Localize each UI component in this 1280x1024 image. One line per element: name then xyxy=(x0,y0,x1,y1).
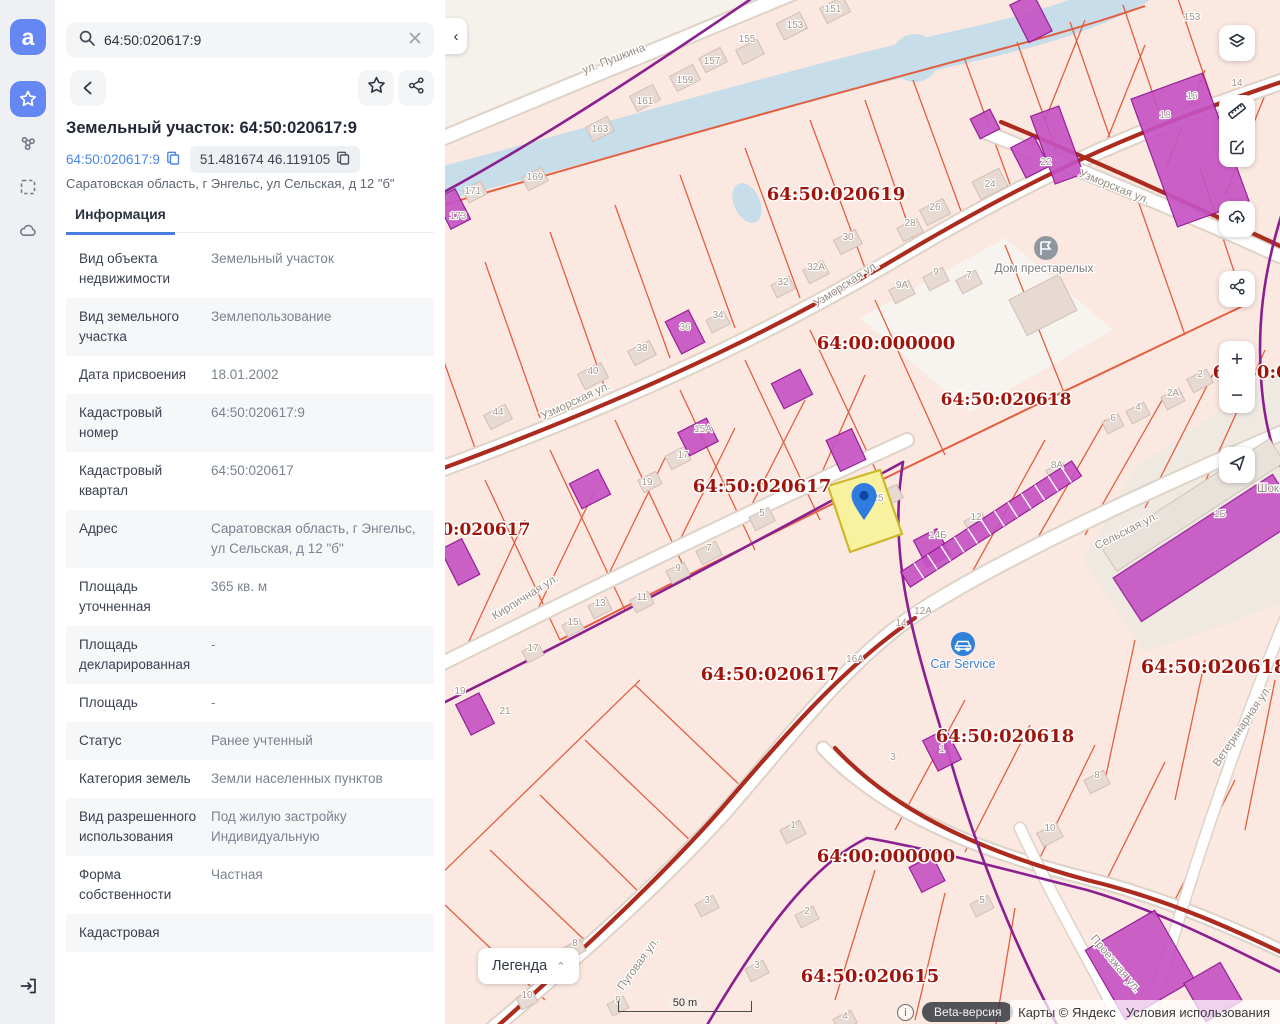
quarter-label: 64:50:020618 xyxy=(936,726,1075,747)
house-number: 9 xyxy=(933,267,939,278)
panel-actions xyxy=(66,70,434,106)
table-row: Площадь уточненная365 кв. м xyxy=(66,568,434,626)
house-number: 171 xyxy=(465,186,482,197)
house-number: 163 xyxy=(592,124,609,135)
terms-link[interactable]: Условия использования xyxy=(1126,1005,1270,1020)
quarter-label: 64:50:020615 xyxy=(801,966,940,987)
house-number: 14 xyxy=(895,618,907,629)
house-number: 16 xyxy=(1186,91,1198,102)
house-number: 16А xyxy=(846,654,864,665)
polygon-tool-button[interactable] xyxy=(10,125,46,161)
object-address: Саратовская область, г Энгельс, ул Сельс… xyxy=(66,176,434,191)
layers-button[interactable] xyxy=(1219,25,1255,61)
house-number: 5 xyxy=(759,508,765,519)
house-number: 8 xyxy=(572,938,578,949)
upload-button[interactable] xyxy=(1219,201,1255,237)
copy-cadastral-icon[interactable] xyxy=(166,151,180,168)
house-number: 155 xyxy=(739,34,756,45)
house-number: 15А xyxy=(694,424,712,435)
house-number: 34 xyxy=(712,310,724,321)
sign-in-button[interactable] xyxy=(10,968,46,1004)
quarter-label: 64:50:020617 xyxy=(693,476,832,497)
legend-label: Легенда xyxy=(492,958,547,974)
edit-pencil-icon xyxy=(1227,137,1247,162)
collapse-panel-button[interactable]: ‹ xyxy=(445,18,467,54)
house-number: 7 xyxy=(706,543,712,554)
search-box xyxy=(66,22,434,58)
table-row: Дата присвоения18.01.2002 xyxy=(66,356,434,394)
house-number: 3 xyxy=(704,895,710,906)
star-outline-icon xyxy=(366,75,387,101)
table-row: Кадастровый квартал64:50:020617 xyxy=(66,452,434,510)
quarter-label: 64:00:000000 xyxy=(817,333,956,354)
scale-bar: 50 m xyxy=(618,1001,752,1012)
house-number: 169 xyxy=(527,172,544,183)
info-table: Вид объекта недвижимостиЗемельный участо… xyxy=(66,240,434,952)
zoom-in-button[interactable]: + xyxy=(1219,341,1255,377)
house-number: 19 xyxy=(641,477,653,488)
plus-icon: + xyxy=(1231,349,1243,370)
house-number: 44 xyxy=(492,407,504,418)
house-number: 1 xyxy=(790,820,796,831)
navigation-arrow-icon xyxy=(1227,453,1247,478)
house-number: 159 xyxy=(677,75,694,86)
house-number: 6 xyxy=(1110,413,1116,424)
house-number: 5 xyxy=(979,895,985,906)
share-object-button[interactable] xyxy=(398,70,434,106)
object-info-panel: Земельный участок: 64:50:020617:9 64:50:… xyxy=(55,0,445,1024)
house-number: 13 xyxy=(594,598,606,609)
house-number: 173 xyxy=(450,211,467,222)
search-input[interactable] xyxy=(104,32,400,48)
house-number: 9 xyxy=(675,563,681,574)
cadastral-number-link[interactable]: 64:50:020617:9 xyxy=(66,152,160,167)
house-number: 157 xyxy=(704,56,721,67)
cadastral-map-app: a xyxy=(0,0,1280,1024)
house-number: 36 xyxy=(679,322,691,333)
chevron-up-icon: ⌃ xyxy=(556,960,565,973)
share-nodes-icon xyxy=(407,76,426,100)
info-icon[interactable]: i xyxy=(897,1004,914,1021)
table-row: СтатусРанее учтенный xyxy=(66,722,434,760)
locate-me-button[interactable] xyxy=(1219,447,1255,483)
quarter-label: 64:50:020618 xyxy=(1141,656,1280,678)
cloud-button[interactable] xyxy=(10,213,46,249)
table-row: Кадастровая xyxy=(66,914,434,952)
house-number: 26 xyxy=(929,202,941,213)
table-row: Категория земельЗемли населенных пунктов xyxy=(66,760,434,798)
poi-label: Car Service xyxy=(930,657,995,671)
zoom-controls: + − xyxy=(1219,341,1255,413)
house-number: 32 xyxy=(777,277,789,288)
coordinates-value: 51.481674 46.119105 xyxy=(200,152,330,167)
house-number: 10 xyxy=(521,990,533,1001)
attribution-text: Карты © Яндекс xyxy=(1018,1005,1116,1020)
panel-tabs: Информация xyxy=(66,200,434,233)
street-label: Шоко xyxy=(1257,483,1280,495)
ruler-button[interactable] xyxy=(1219,95,1255,131)
chevron-left-icon: ‹ xyxy=(454,28,459,45)
coordinates-chip[interactable]: 51.481674 46.119105 xyxy=(190,146,360,173)
house-number: 12 xyxy=(970,512,982,523)
house-number: 21 xyxy=(499,706,511,717)
map-attribution: Карты © Яндекс Условия использования xyxy=(1010,1000,1280,1024)
house-number: 12А xyxy=(914,606,932,617)
minus-icon: − xyxy=(1231,385,1243,406)
house-number: 1Б xyxy=(1214,509,1227,520)
quarter-label: 64:00:000000 xyxy=(817,846,956,867)
object-identifiers: 64:50:020617:9 51.481674 46.119105 xyxy=(66,146,360,173)
house-number: 14 xyxy=(1231,78,1243,89)
house-number: 11 xyxy=(637,592,648,603)
table-row: Форма собственностиЧастная xyxy=(66,856,434,914)
house-number: 2 xyxy=(804,906,810,917)
house-number: 2А xyxy=(1167,388,1180,399)
house-number: 19 xyxy=(454,686,466,697)
app-logo-icon[interactable]: a xyxy=(10,19,46,55)
legend-button[interactable]: Легенда ⌃ xyxy=(478,948,579,984)
tab-information[interactable]: Информация xyxy=(66,200,175,235)
quarter-label: 64:50:020617 xyxy=(445,520,530,540)
measure-tools-group xyxy=(1219,95,1255,167)
quarter-label: 64:50:020617 xyxy=(701,664,840,685)
table-row: Площадь декларированная- xyxy=(66,626,434,684)
draw-edit-button[interactable] xyxy=(1219,131,1255,167)
house-number: 24 xyxy=(984,179,996,190)
dashed-square-icon xyxy=(18,177,38,197)
house-number: 28 xyxy=(904,218,916,229)
house-number: 40 xyxy=(587,366,599,377)
map-canvas[interactable]: 151 153 155 157 159 161 163 169 171 173 … xyxy=(445,0,1280,1024)
table-row: Вид объекта недвижимостиЗемельный участо… xyxy=(66,240,434,298)
sign-in-icon xyxy=(18,976,38,996)
map-viewport: 151 153 155 157 159 161 163 169 171 173 … xyxy=(445,0,1280,1024)
house-number: 151 xyxy=(825,4,842,15)
area-select-button[interactable] xyxy=(10,169,46,205)
zoom-out-button[interactable]: − xyxy=(1219,377,1255,413)
house-number: 14Б xyxy=(929,530,947,541)
house-number: 17 xyxy=(677,450,689,461)
house-number: 30 xyxy=(842,232,854,243)
house-number: 153 xyxy=(1184,12,1201,23)
house-number: 3 xyxy=(754,960,760,971)
page-title: Земельный участок: 64:50:020617:9 xyxy=(66,119,434,138)
quarter-label: 64:50:020618 xyxy=(941,390,1072,410)
share-nodes-icon xyxy=(1228,277,1247,301)
star-icon xyxy=(18,89,38,109)
table-row: АдресСаратовская область, г Энгельс, ул … xyxy=(66,510,434,568)
table-row: Кадастровый номер64:50:020617:9 xyxy=(66,394,434,452)
poi-label: Дом престарелых xyxy=(995,261,1094,275)
clear-search-icon[interactable] xyxy=(408,31,422,50)
house-number: 17 xyxy=(527,643,539,654)
table-row: Площадь- xyxy=(66,684,434,722)
house-number: 2 xyxy=(1197,369,1203,380)
house-number: 3 xyxy=(890,752,896,763)
favorites-rail-button[interactable] xyxy=(10,81,46,117)
favorite-object-button[interactable] xyxy=(358,70,394,106)
beta-badge: Beta-версия xyxy=(922,1002,1013,1022)
house-number: 9А xyxy=(896,280,909,291)
house-number: 15 xyxy=(567,617,579,628)
left-rail: a xyxy=(0,0,55,1024)
house-number: 10 xyxy=(1044,823,1056,834)
house-number: 8 xyxy=(1094,770,1100,781)
scale-label: 50 m xyxy=(669,997,701,1009)
house-number: 22 xyxy=(1040,157,1052,168)
layers-icon xyxy=(1227,31,1247,56)
cloud-upload-icon xyxy=(1227,206,1248,232)
table-row: Вид земельного участкаЗемлепользование xyxy=(66,298,434,356)
search-icon xyxy=(78,29,96,52)
house-number: 18 xyxy=(1159,110,1171,121)
house-number: 32А xyxy=(807,262,825,273)
house-number: 8А xyxy=(1051,460,1064,471)
cloud-icon xyxy=(18,221,38,241)
house-number: 4 xyxy=(842,1011,848,1022)
house-number: 161 xyxy=(637,96,654,107)
house-number: 153 xyxy=(787,20,804,31)
share-map-button[interactable] xyxy=(1219,271,1255,307)
house-number: 38 xyxy=(636,343,648,354)
polygon-nodes-icon xyxy=(18,133,38,153)
copy-coordinates-icon[interactable] xyxy=(336,151,350,168)
quarter-label: 64:50:020619 xyxy=(767,184,906,205)
back-button[interactable] xyxy=(70,70,106,106)
house-number: 7 xyxy=(966,270,972,281)
house-number: 4 xyxy=(1135,402,1141,413)
table-row: Вид разрешенного использованияПод жилую … xyxy=(66,798,434,856)
ruler-icon xyxy=(1227,101,1247,126)
